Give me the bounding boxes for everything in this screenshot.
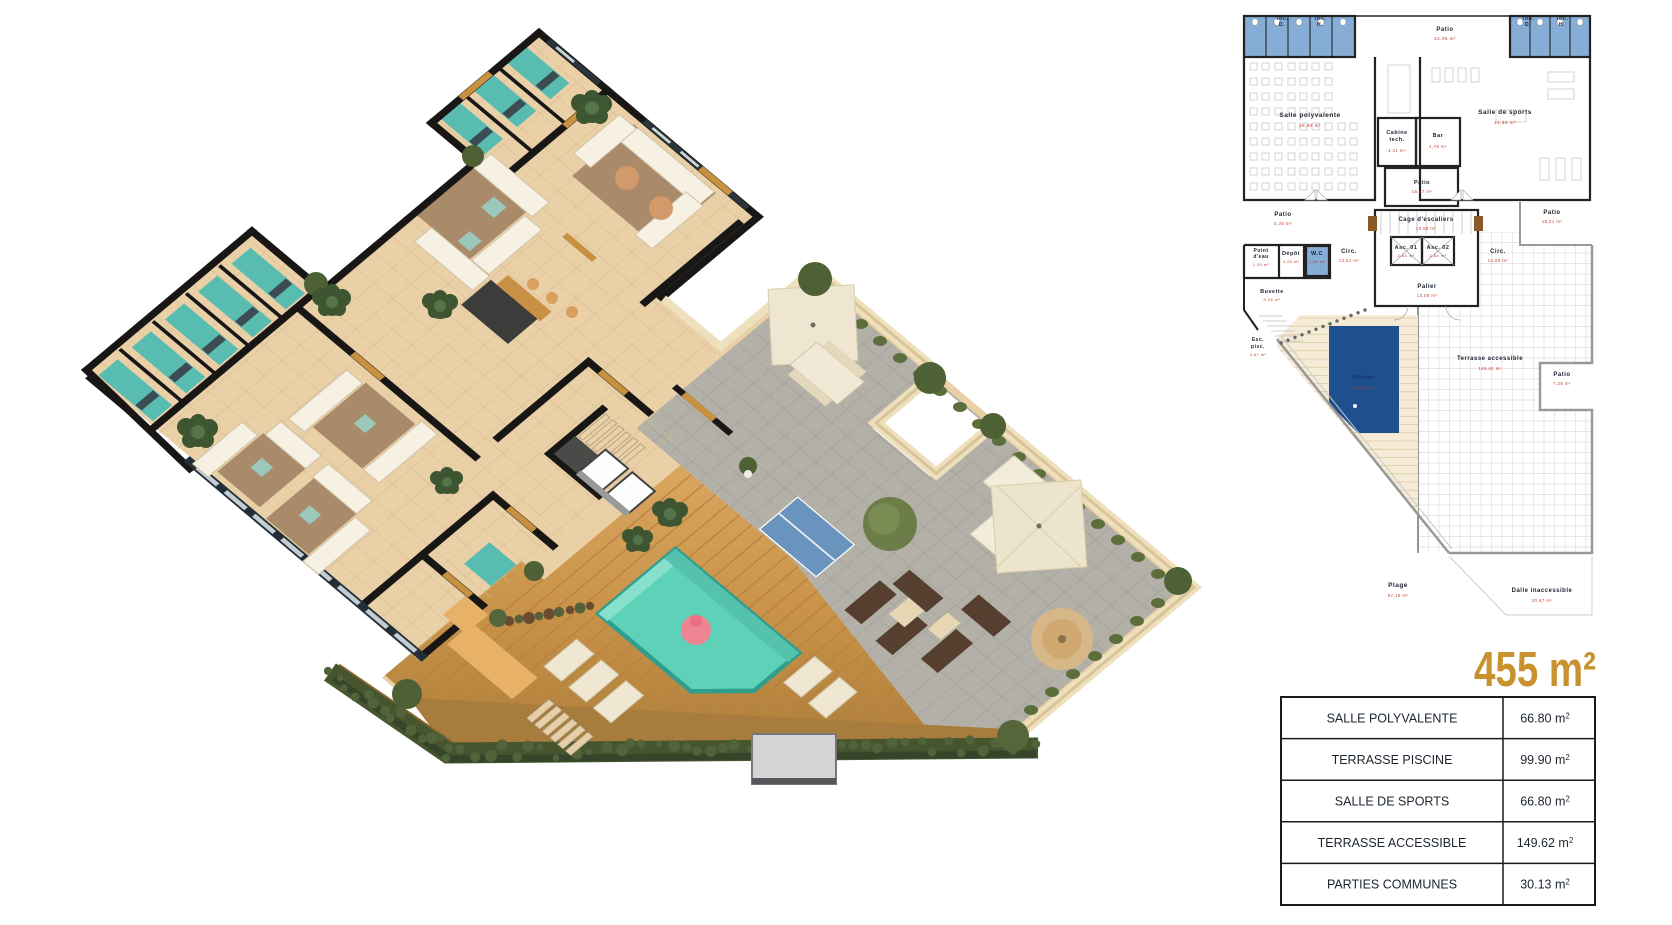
svg-text:Cage d'escaliers: Cage d'escaliers <box>1398 217 1453 223</box>
svg-text:2,84 m²: 2,84 m² <box>1429 253 1446 258</box>
svg-text:7,25 m²: 7,25 m² <box>1553 381 1571 386</box>
svg-text:14,05 m²: 14,05 m² <box>1488 258 1509 263</box>
svg-text:TERRASSE ACCESSIBLE: TERRASSE ACCESSIBLE <box>1318 836 1467 850</box>
svg-text:Salle de sports: Salle de sports <box>1478 109 1532 116</box>
svg-text:20,67 m²: 20,67 m² <box>1532 598 1553 603</box>
svg-text:PARTIES COMMUNES: PARTIES COMMUNES <box>1327 878 1457 892</box>
svg-text:3,67 m²: 3,67 m² <box>1250 353 1267 357</box>
svg-text:97,16 m²: 97,16 m² <box>1388 593 1409 598</box>
svg-text:pisc.: pisc. <box>1251 344 1265 350</box>
svg-text:SALLE POLYVALENTE: SALLE POLYVALENTE <box>1327 711 1458 725</box>
svg-text:19,08 m²: 19,08 m² <box>1416 226 1437 231</box>
svg-text:H.: H. <box>1317 22 1323 28</box>
svg-text:SALLE DE SPORTS: SALLE DE SPORTS <box>1335 795 1449 809</box>
svg-text:Patio: Patio <box>1436 27 1453 33</box>
svg-text:Patio: Patio <box>1553 372 1570 378</box>
svg-text:Asc. 02: Asc. 02 <box>1427 245 1450 251</box>
svg-text:13,51 m²: 13,51 m² <box>1339 258 1360 263</box>
svg-text:Dalle inaccessible: Dalle inaccessible <box>1512 588 1573 594</box>
svg-text:1,66 m²: 1,66 m² <box>1309 260 1326 264</box>
svg-text:Circ.: Circ. <box>1490 249 1506 255</box>
svg-text:2,84 m²: 2,84 m² <box>1397 253 1414 258</box>
svg-text:Bar: Bar <box>1433 133 1444 139</box>
svg-text:H.: H. <box>1559 22 1565 28</box>
svg-text:4,76 m²: 4,76 m² <box>1429 144 1447 149</box>
svg-text:Terrasse accessible: Terrasse accessible <box>1457 356 1523 362</box>
svg-text:66.80 m2: 66.80 m2 <box>1520 711 1570 726</box>
svg-text:Patio: Patio <box>1543 210 1560 216</box>
svg-text:Dépôt: Dépôt <box>1282 251 1300 257</box>
svg-text:149,62 m²: 149,62 m² <box>1478 366 1501 371</box>
svg-text:13,08 m²: 13,08 m² <box>1417 293 1438 298</box>
svg-text:Palier: Palier <box>1417 284 1437 290</box>
svg-text:22,06 m²: 22,06 m² <box>1434 36 1456 41</box>
svg-text:5,35 m²: 5,35 m² <box>1274 221 1292 226</box>
svg-text:Piscine: Piscine <box>1353 375 1376 381</box>
svg-text:D.: D. <box>1525 22 1531 28</box>
svg-text:46,80 m²: 46,80 m² <box>1299 123 1321 128</box>
svg-text:Patio: Patio <box>1414 180 1430 186</box>
svg-text:30.13 m2: 30.13 m2 <box>1520 877 1570 892</box>
svg-text:16,27 m²: 16,27 m² <box>1412 189 1433 194</box>
svg-text:99.90 m2: 99.90 m2 <box>1520 752 1570 767</box>
svg-text:3,26 m²: 3,26 m² <box>1283 260 1300 264</box>
svg-text:tech.: tech. <box>1389 137 1404 143</box>
svg-text:18,21 m²: 18,21 m² <box>1542 219 1563 224</box>
svg-text:455 m²: 455 m² <box>1474 643 1596 697</box>
svg-text:Plage: Plage <box>1388 582 1408 589</box>
svg-text:Buvette: Buvette <box>1260 289 1284 295</box>
svg-text:1,30 m²: 1,30 m² <box>1253 263 1270 267</box>
svg-text:149.62 m2: 149.62 m2 <box>1517 836 1574 851</box>
svg-text:4,21 m²: 4,21 m² <box>1388 148 1406 153</box>
svg-text:Patio: Patio <box>1274 212 1291 218</box>
svg-text:66.80 m2: 66.80 m2 <box>1520 794 1570 809</box>
svg-text:Circ.: Circ. <box>1341 249 1357 255</box>
svg-text:D.: D. <box>1279 22 1285 28</box>
svg-text:5,26 m²: 5,26 m² <box>1263 297 1280 302</box>
svg-text:Salle polyvalente: Salle polyvalente <box>1279 112 1340 119</box>
svg-text:TERRASSE PISCINE: TERRASSE PISCINE <box>1332 753 1453 767</box>
svg-text:Asc. 01: Asc. 01 <box>1395 245 1418 251</box>
svg-text:33,13 m²: 33,13 m² <box>1354 385 1375 390</box>
svg-text:Cabine: Cabine <box>1386 130 1407 136</box>
svg-text:44,80 m²: 44,80 m² <box>1494 120 1516 125</box>
svg-text:d'eau: d'eau <box>1253 254 1268 260</box>
svg-text:W.C: W.C <box>1311 251 1323 257</box>
svg-text:Esc.: Esc. <box>1252 337 1264 343</box>
